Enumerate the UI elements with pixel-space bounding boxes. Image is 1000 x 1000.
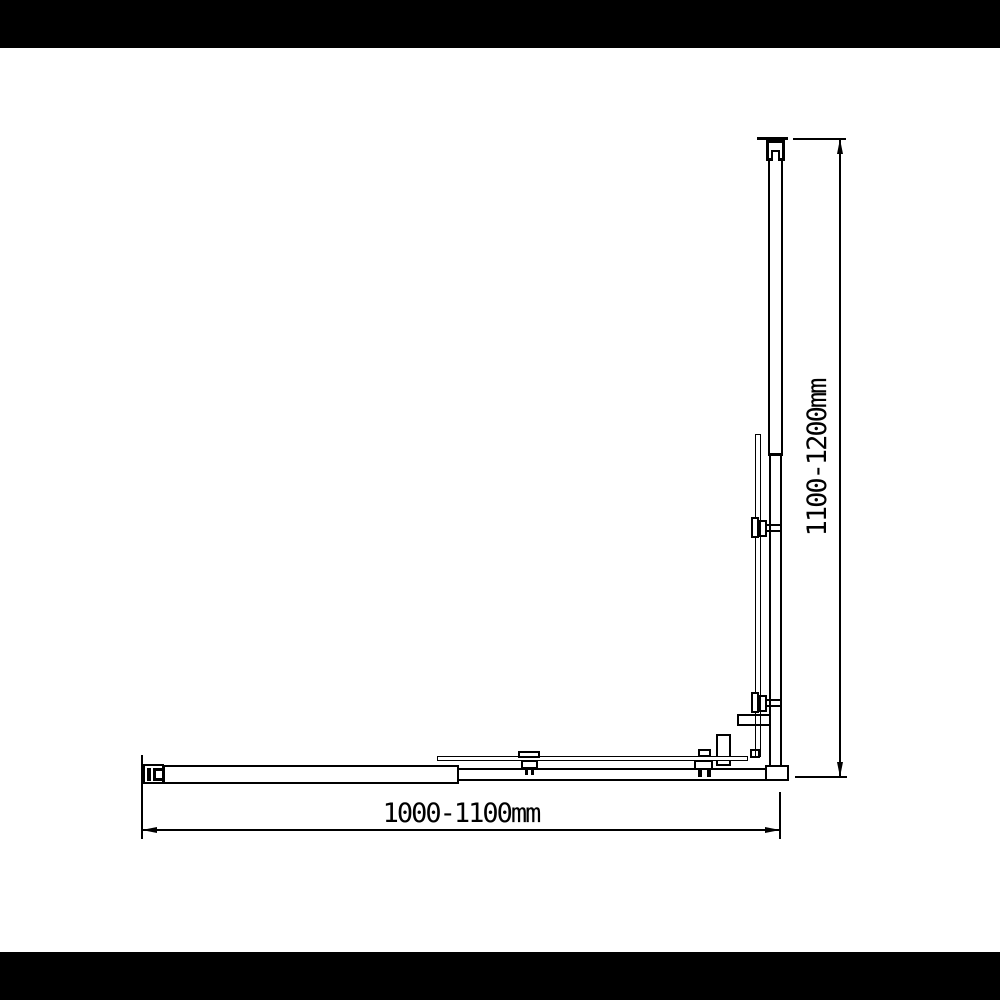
wall-profile-right-edge <box>781 160 783 456</box>
top-wall-bracket-notch <box>771 150 780 161</box>
letterbox-bottom-bar <box>0 952 1000 1000</box>
width-dimension-arrow-right <box>765 827 780 833</box>
left-wall-profile-channel-slot <box>156 771 162 778</box>
height-dimension-arrow-down <box>837 762 843 777</box>
bottom-rail-top-edge <box>459 768 767 770</box>
technical-drawing-page: 1100-1200mm 1000-1100mm <box>0 0 1000 1000</box>
width-dimension-line <box>142 829 780 831</box>
corner-l-bracket <box>737 714 771 726</box>
height-dimension-label: 1100-1200mm <box>803 378 833 538</box>
height-dimension-line <box>839 139 841 777</box>
upper-glass-clamp-stud <box>766 524 781 532</box>
right-roller-clamp-leg-left <box>698 770 702 777</box>
middle-roller-clamp-leg-right <box>531 769 534 775</box>
width-dimension-arrow-left <box>142 827 157 833</box>
middle-roller-clamp-body <box>521 760 538 769</box>
glass-corner-junction <box>750 749 760 758</box>
width-dimension-label: 1000-1100mm <box>341 799 581 829</box>
letterbox-top-bar <box>0 0 1000 48</box>
middle-roller-clamp-top <box>518 751 540 758</box>
lower-glass-clamp-stud <box>766 699 781 707</box>
right-roller-clamp-top <box>698 749 711 757</box>
left-wall-profile-bar <box>147 768 151 781</box>
height-dimension-arrow-up <box>837 139 843 154</box>
upper-glass-clamp-plate <box>751 517 759 538</box>
corner-stopper-post <box>716 734 731 766</box>
vertical-rail-right-edge <box>780 456 782 766</box>
right-roller-clamp-leg-right <box>707 770 711 777</box>
wall-profile-left-edge <box>768 160 770 456</box>
bottom-rail-bottom-edge <box>459 779 767 781</box>
right-roller-clamp-body <box>694 760 713 770</box>
lower-glass-clamp-plate <box>751 692 759 713</box>
corner-foot-block <box>765 765 789 781</box>
bottom-rail-housing <box>163 765 459 784</box>
middle-roller-clamp-leg-left <box>525 769 528 775</box>
